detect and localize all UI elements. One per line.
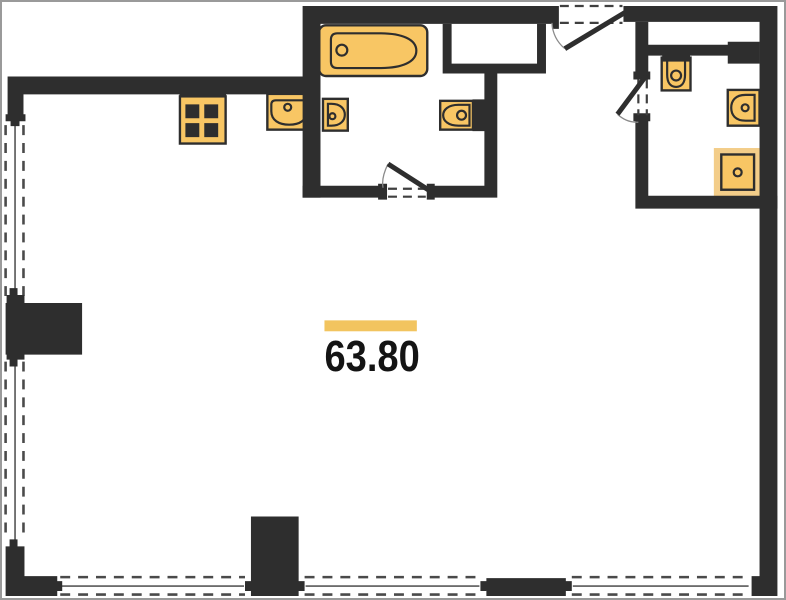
main-bathroom-door	[383, 164, 430, 197]
toilet-second-body	[662, 58, 691, 91]
main-bath-door-threshold	[388, 189, 426, 197]
second-bath-door-leaf	[617, 76, 646, 115]
toilet-main-bath	[440, 101, 473, 130]
floor-plan: 63.80	[0, 0, 786, 600]
shower-tray	[714, 148, 761, 197]
floor-plan-drawing: 63.80	[2, 2, 784, 598]
walls	[6, 6, 778, 596]
wall-basin	[728, 90, 760, 126]
hand-basin	[323, 99, 348, 131]
area-marker-bar	[324, 320, 416, 331]
entry-door	[552, 6, 627, 49]
main-bath-door-leaf	[388, 164, 430, 191]
bathtub	[319, 25, 427, 76]
stove	[179, 87, 226, 143]
exterior-walls	[6, 6, 778, 596]
area-label: 63.80	[324, 332, 419, 381]
entry-door-leaf	[565, 11, 628, 49]
shower-inner	[721, 154, 754, 189]
area-label-group: 63.80	[324, 320, 419, 381]
